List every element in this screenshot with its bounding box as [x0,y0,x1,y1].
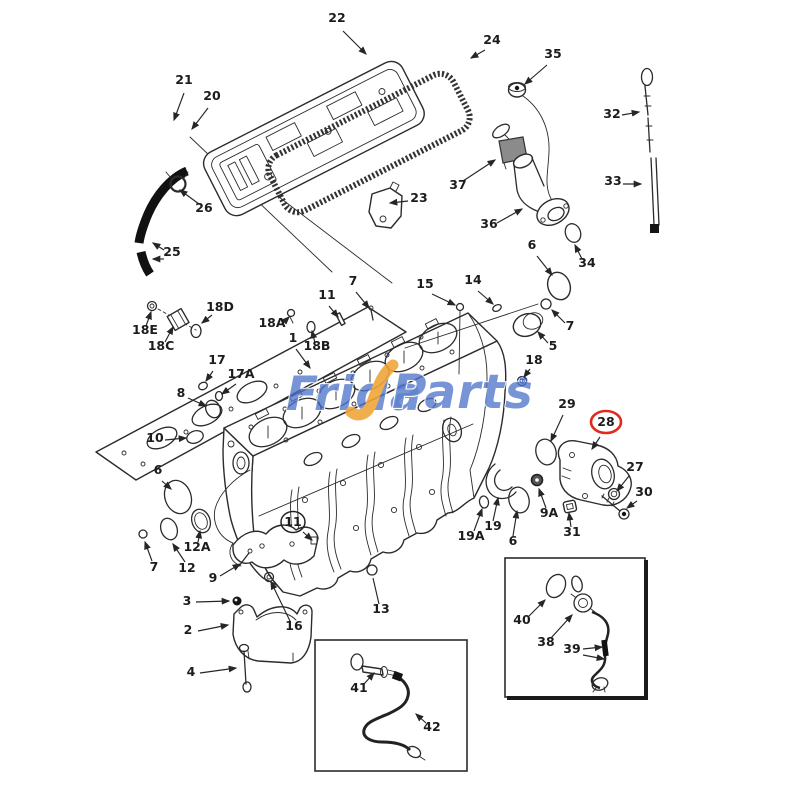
svg-text:6: 6 [154,462,163,477]
callout-5: 5 [538,332,557,353]
callout-9A: 9A [539,489,559,520]
callout-18D: 18D [202,299,234,323]
svg-text:36: 36 [480,216,498,231]
svg-text:39: 39 [563,641,580,656]
inset-box-sender [505,558,648,699]
svg-text:8: 8 [177,385,186,400]
svg-text:16: 16 [285,618,303,633]
callout-18E: 18E [132,312,158,337]
svg-text:2: 2 [184,622,193,637]
svg-text:26: 26 [195,200,213,215]
callout-37: 37 [449,160,495,192]
callout-2: 2 [184,622,228,637]
svg-text:15: 15 [416,276,433,291]
callout-35: 35 [525,46,562,84]
callout-14: 14 [464,272,493,304]
callout-13: 13 [372,578,389,616]
callout-3: 3 [183,593,229,608]
callout-4: 4 [187,664,236,679]
callout-26: 26 [180,190,213,215]
callout-19: 19 [484,498,501,533]
svg-text:3: 3 [183,593,192,608]
callout-33: 33 [604,173,641,188]
callout-34: 34 [575,245,596,270]
svg-text:11: 11 [284,514,301,529]
svg-text:17A: 17A [227,366,254,381]
svg-text:18E: 18E [132,322,158,337]
callout-31: 31 [563,513,580,539]
side-plate [369,182,402,228]
svg-text:19: 19 [484,518,501,533]
callout-6: 6 [528,237,552,275]
svg-text:18D: 18D [206,299,234,314]
svg-text:25: 25 [163,244,180,259]
watermark-registered: ® [518,374,529,387]
svg-text:18B: 18B [304,338,331,353]
filler-neck [511,151,583,244]
svg-text:14: 14 [464,272,482,287]
svg-text:41: 41 [350,680,367,695]
o-ring-34 [563,222,584,245]
svg-text:6: 6 [509,533,518,548]
svg-text:31: 31 [563,524,580,539]
callout-19A: 19A [457,509,484,543]
svg-text:37: 37 [449,177,466,192]
callout-36: 36 [480,209,522,231]
callout-9: 9 [209,564,240,585]
elbow-19 [486,464,516,499]
svg-text:18A: 18A [258,315,285,330]
svg-text:6: 6 [528,237,537,252]
svg-text:18: 18 [525,352,542,367]
svg-text:4: 4 [187,664,196,679]
svg-text:9A: 9A [540,505,559,520]
svg-text:12A: 12A [183,539,210,554]
svg-text:28: 28 [597,414,614,429]
svg-text:38: 38 [537,634,554,649]
callout-22: 22 [328,10,366,54]
svg-text:40: 40 [513,612,531,627]
callout-17: 17 [206,352,226,381]
callout-25: 25 [153,243,181,259]
callout-29: 29 [551,396,576,441]
callout-6: 6 [154,462,171,489]
svg-text:27: 27 [626,459,643,474]
parts-diagram-page: { "watermark": { "part1": "Frida", "part… [0,0,800,800]
callout-7: 7 [145,542,158,574]
callout-24: 24 [471,32,501,58]
svg-text:24: 24 [483,32,501,47]
svg-text:29: 29 [558,396,575,411]
svg-text:22: 22 [328,10,345,25]
tach-housing-28 [558,441,631,506]
svg-text:9: 9 [209,570,218,585]
o-ring-29 [533,437,559,467]
callout-12A: 12A [183,531,210,554]
svg-text:21: 21 [175,72,192,87]
svg-text:32: 32 [603,106,620,121]
callout-21: 21 [174,72,193,120]
svg-text:12: 12 [178,560,195,575]
callout-6: 6 [509,511,518,548]
svg-text:18C: 18C [148,338,175,353]
dipstick [642,69,660,234]
svg-text:19A: 19A [457,528,484,543]
exploded-engine-diagram: Frida Parts ® 22212024262523353736343233… [0,0,800,800]
svg-text:7: 7 [349,273,358,288]
callout-32: 32 [603,106,639,121]
svg-text:11: 11 [318,287,335,302]
callout-20: 20 [192,88,221,129]
svg-text:5: 5 [549,338,558,353]
svg-text:42: 42 [423,719,440,734]
svg-text:13: 13 [372,601,389,616]
svg-text:20: 20 [203,88,221,103]
callout-15: 15 [416,276,455,305]
svg-text:10: 10 [146,430,164,445]
svg-text:23: 23 [410,190,427,205]
svg-text:33: 33 [604,173,621,188]
dipstick-tube [651,158,659,225]
callout-28: 28 [591,411,621,449]
svg-text:30: 30 [635,484,653,499]
cam-plug-set [510,269,574,340]
callout-7: 7 [552,310,574,333]
svg-text:35: 35 [544,46,561,61]
svg-text:7: 7 [566,318,575,333]
svg-text:34: 34 [578,255,596,270]
callout-11: 11 [318,287,338,317]
svg-text:17: 17 [208,352,225,367]
callout-7: 7 [349,273,369,308]
svg-text:1: 1 [289,330,298,345]
svg-text:7: 7 [150,559,159,574]
inset-box-sensor [315,640,467,771]
watermark: Frida Parts ® [286,365,534,422]
watermark-parts: Parts [392,365,534,420]
callout-18A: 18A [258,315,289,330]
